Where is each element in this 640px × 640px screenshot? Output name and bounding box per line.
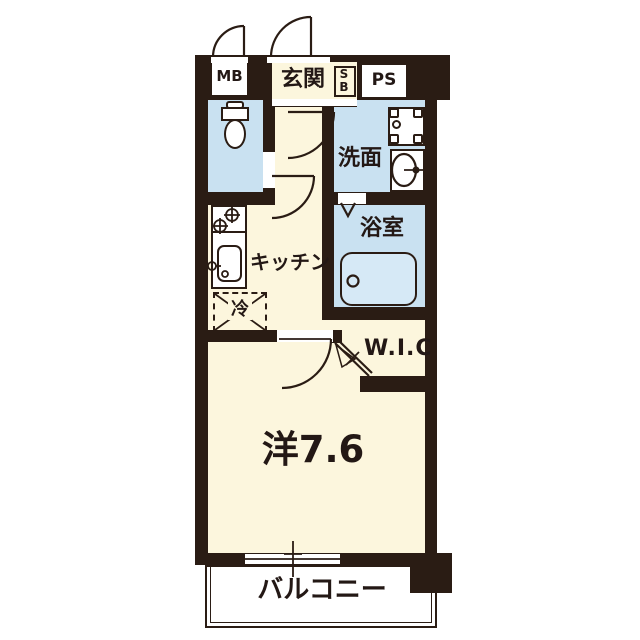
stove-icon bbox=[211, 205, 247, 233]
entrance-label: 玄関 bbox=[272, 68, 334, 91]
wall-toilet-right-lower bbox=[263, 188, 275, 205]
washroom-label: 洗面 bbox=[334, 147, 386, 170]
shoebox-label-b: B bbox=[334, 81, 354, 94]
wall-bath-bottom bbox=[334, 307, 425, 320]
window-main-room bbox=[245, 554, 340, 564]
entrance-door-sill bbox=[267, 57, 330, 63]
wall-block-bottom-right bbox=[410, 553, 452, 593]
kitchen-sink-icon bbox=[217, 245, 242, 282]
wall-left bbox=[195, 55, 208, 565]
basin-counter-icon bbox=[390, 149, 425, 192]
main-room-label: 洋7.6 bbox=[238, 431, 388, 470]
washer-pan-corner bbox=[413, 108, 423, 118]
toilet-door-opening bbox=[263, 152, 275, 188]
wall-hall-washroom bbox=[322, 100, 334, 320]
balcony-label: バルコニー bbox=[238, 577, 406, 604]
entrance-step bbox=[272, 99, 357, 107]
kitchen-label: キッチン bbox=[248, 252, 332, 273]
wall-right bbox=[425, 100, 437, 565]
pipe-space-label: PS bbox=[362, 72, 406, 90]
bath-door-opening bbox=[338, 193, 366, 204]
bathtub-icon bbox=[340, 252, 417, 306]
mb-door-swing-icon bbox=[213, 26, 244, 57]
shoebox-label-s: S bbox=[334, 68, 354, 81]
washer-pan-corner bbox=[389, 134, 399, 144]
bathroom-label: 浴室 bbox=[354, 217, 410, 240]
kitchen-door-sill bbox=[277, 330, 333, 342]
fridge-label: 冷 bbox=[228, 301, 252, 320]
wic-label: W.I.C bbox=[364, 337, 432, 360]
entrance-door-swing-icon bbox=[271, 17, 311, 57]
floor-plan: MB 玄関 S B PS 洗面 浴室 キッチン 冷 W.I.C 洋7.6 バルコ… bbox=[0, 0, 640, 640]
washer-drain-icon bbox=[392, 120, 401, 129]
wall-wic-bottom bbox=[360, 376, 437, 392]
washer-pan-corner bbox=[389, 108, 399, 118]
washer-pan-corner bbox=[413, 134, 423, 144]
mb-label: MB bbox=[212, 69, 247, 85]
toilet-bowl-icon bbox=[224, 119, 246, 149]
wall-toilet-right-upper bbox=[263, 100, 275, 152]
